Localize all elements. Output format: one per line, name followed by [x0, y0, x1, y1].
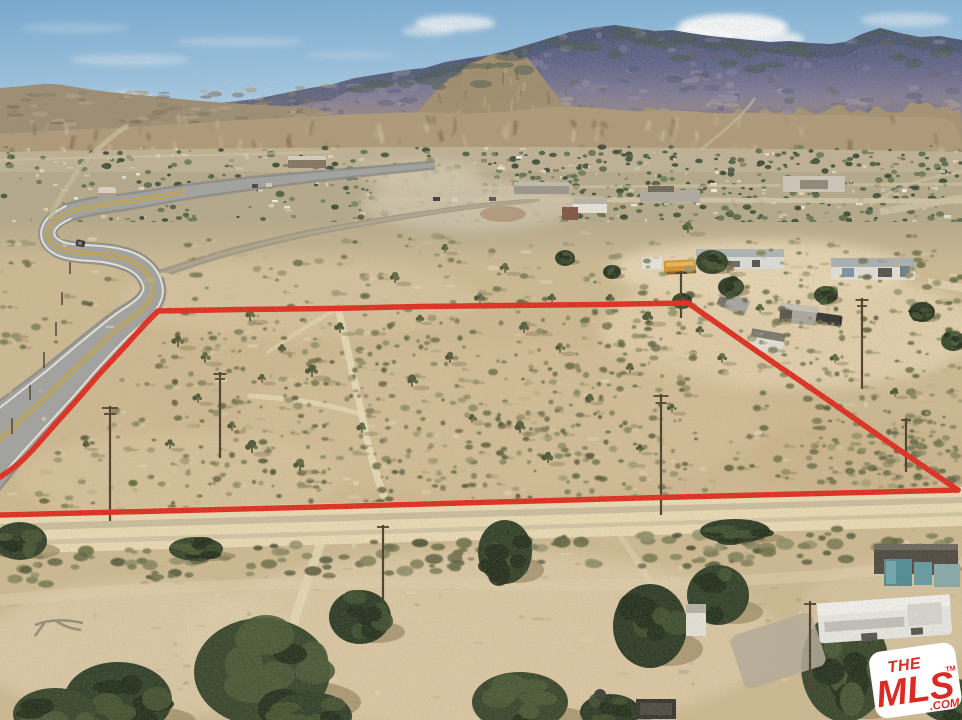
svg-text:TM: TM — [945, 665, 956, 673]
